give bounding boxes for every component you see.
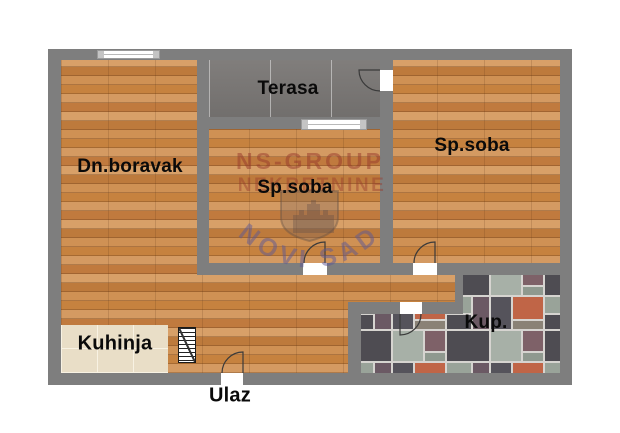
wall-outer-right (560, 49, 572, 385)
floorplan-image: NS-GROUP NEKRETNINE NOVI SAD Dn.boravak … (0, 0, 620, 433)
wall-outer-bottom (48, 373, 572, 385)
wall-living-terrace (197, 59, 209, 275)
wall-bedrooms-bottom (197, 263, 560, 275)
window-living-room (97, 50, 160, 59)
wall-outer-left (48, 49, 61, 385)
door-bathroom (400, 302, 422, 314)
label-bathroom: Kup. (464, 312, 507, 334)
door-terrace (380, 70, 393, 91)
label-terrace: Terasa (257, 78, 318, 100)
label-living-room: Dn.boravak (77, 156, 182, 178)
window-terrace (301, 119, 367, 130)
door-bedroom-middle (303, 263, 327, 275)
label-bedroom-right: Sp.soba (434, 135, 509, 157)
label-kitchen: Kuhinja (78, 333, 153, 356)
wall-terrace-bedroom-stub (380, 59, 393, 70)
wall-bedrooms-divider (380, 91, 393, 275)
label-entrance: Ulaz (209, 385, 251, 408)
wall-bathroom-upper-left (455, 275, 463, 302)
label-bedroom-middle: Sp.soba (257, 177, 332, 199)
door-bedroom-right (413, 263, 437, 275)
radiator-symbol (178, 327, 196, 363)
door-entrance (221, 373, 243, 385)
